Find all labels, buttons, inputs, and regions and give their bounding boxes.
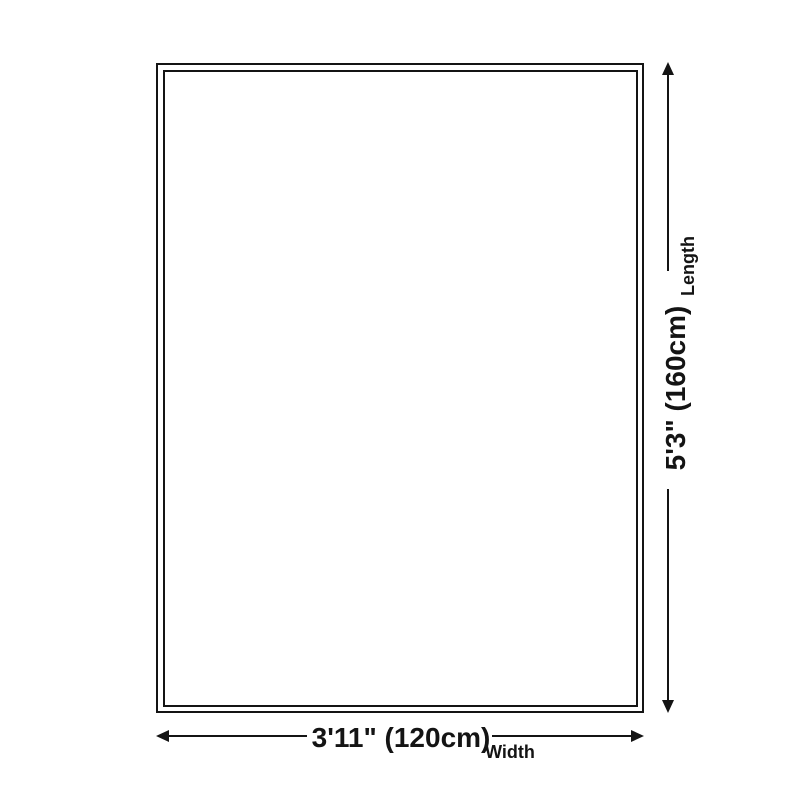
arrow-left-icon (156, 730, 169, 742)
rug-inner-outline (163, 70, 638, 707)
arrow-down-icon (662, 700, 674, 713)
length-axis-label: Length (679, 236, 697, 296)
width-dimension-value: 3'11" (120cm) (312, 724, 491, 752)
length-arrow-line-bottom (667, 489, 670, 700)
arrow-right-icon (631, 730, 644, 742)
length-dimension-value: 5'3" (160cm) (662, 306, 690, 471)
length-arrow-line-top (667, 74, 670, 271)
rug-size-diagram: Length 5'3" (160cm) 3'11" (120cm) Width (0, 0, 800, 800)
rug-outline (156, 63, 644, 713)
width-arrow-line-left (169, 735, 307, 738)
width-arrow-line-right (492, 735, 631, 738)
width-axis-label: Width (485, 743, 535, 761)
